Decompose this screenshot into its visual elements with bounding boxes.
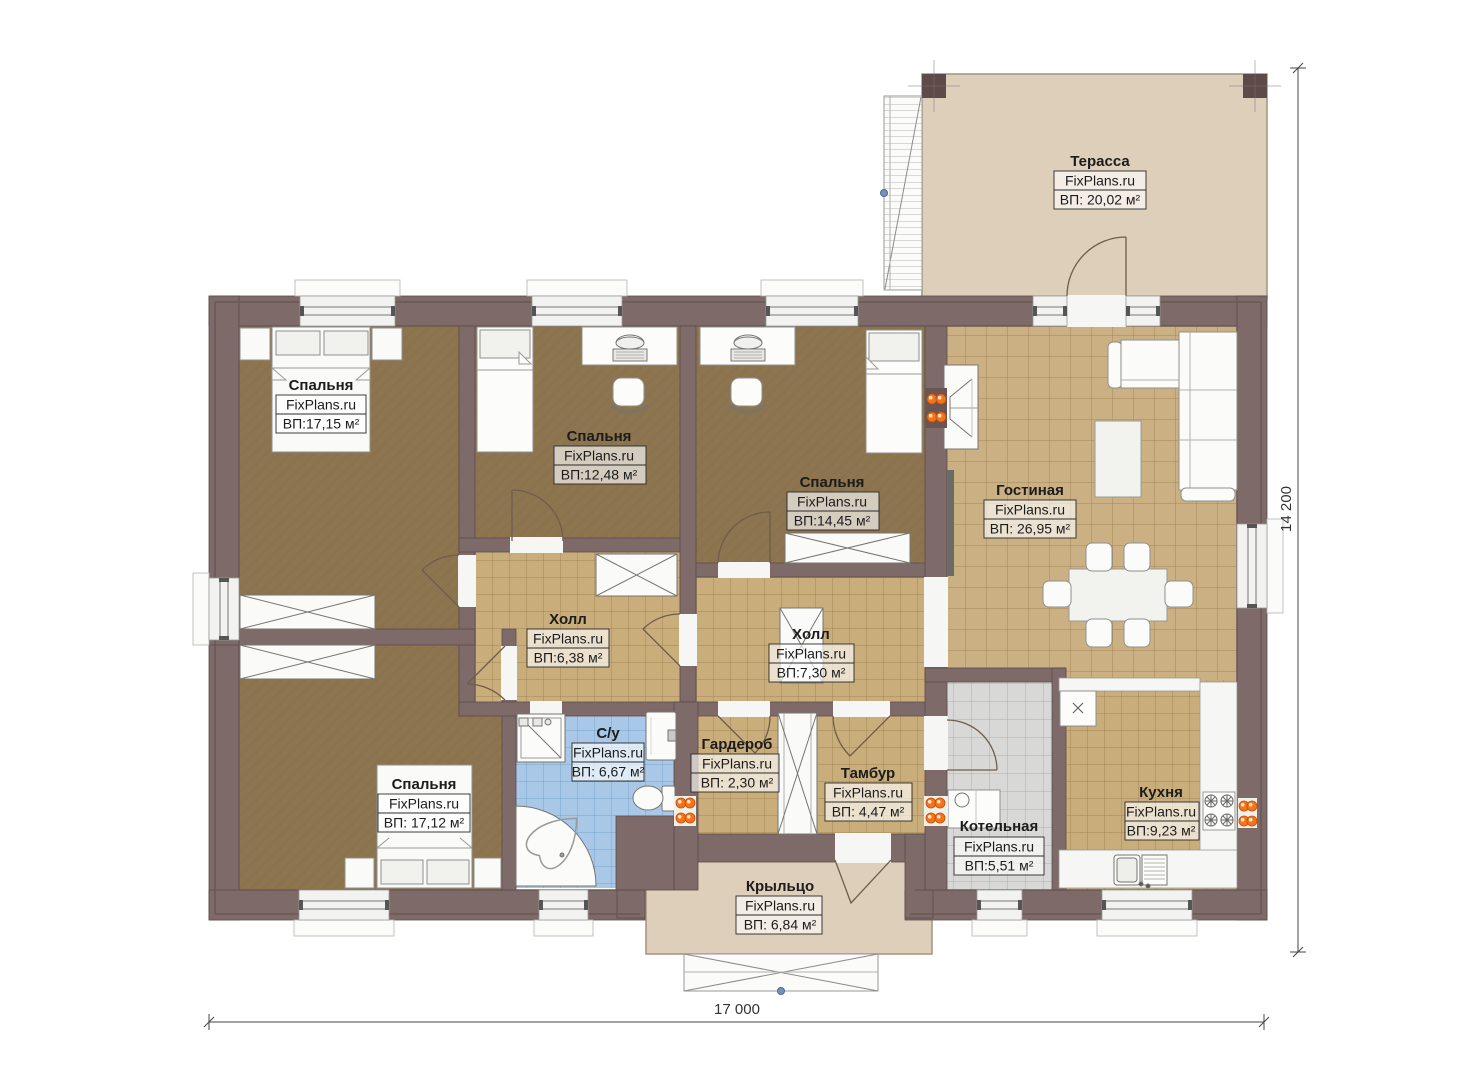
svg-text:Гостиная: Гостиная xyxy=(996,482,1064,499)
svg-text:ВП:6,38 м²: ВП:6,38 м² xyxy=(534,650,603,666)
svg-text:Холл: Холл xyxy=(792,626,830,643)
svg-text:Крыльцо: Крыльцо xyxy=(746,878,814,895)
svg-text:FixPlans.ru: FixPlans.ru xyxy=(573,745,643,761)
svg-text:ВП: 20,02 м²: ВП: 20,02 м² xyxy=(1060,192,1141,208)
svg-text:С/у: С/у xyxy=(596,725,620,742)
svg-text:FixPlans.ru: FixPlans.ru xyxy=(564,448,634,464)
svg-text:ВП:7,30 м²: ВП:7,30 м² xyxy=(777,665,846,681)
svg-text:ВП: 6,67 м²: ВП: 6,67 м² xyxy=(572,764,645,780)
svg-text:ВП:17,15 м²: ВП:17,15 м² xyxy=(283,416,360,432)
svg-text:FixPlans.ru: FixPlans.ru xyxy=(833,785,903,801)
svg-text:Гардероб: Гардероб xyxy=(702,736,773,753)
svg-text:ВП: 17,12 м²: ВП: 17,12 м² xyxy=(384,815,465,831)
svg-text:Котельная: Котельная xyxy=(960,818,1039,835)
svg-text:ВП: 6,84 м²: ВП: 6,84 м² xyxy=(744,917,817,933)
svg-text:ВП:9,23 м²: ВП:9,23 м² xyxy=(1127,823,1196,839)
svg-text:FixPlans.ru: FixPlans.ru xyxy=(1065,173,1135,189)
svg-text:FixPlans.ru: FixPlans.ru xyxy=(533,631,603,647)
svg-text:Тамбур: Тамбур xyxy=(841,765,895,782)
svg-text:FixPlans.ru: FixPlans.ru xyxy=(797,494,867,510)
svg-text:FixPlans.ru: FixPlans.ru xyxy=(702,756,772,772)
svg-text:Спальня: Спальня xyxy=(800,474,865,491)
svg-text:14 200: 14 200 xyxy=(1278,486,1295,532)
svg-text:FixPlans.ru: FixPlans.ru xyxy=(964,839,1034,855)
svg-text:FixPlans.ru: FixPlans.ru xyxy=(286,397,356,413)
svg-text:Спальня: Спальня xyxy=(567,428,632,445)
svg-text:Холл: Холл xyxy=(549,611,587,628)
svg-text:ВП:5,51 м²: ВП:5,51 м² xyxy=(965,858,1034,874)
svg-text:17 000: 17 000 xyxy=(714,1001,760,1018)
svg-text:ВП: 4,47 м²: ВП: 4,47 м² xyxy=(832,804,905,820)
svg-text:Терасса: Терасса xyxy=(1070,153,1130,170)
svg-text:Кухня: Кухня xyxy=(1139,784,1183,801)
svg-text:ВП: 2,30 м²: ВП: 2,30 м² xyxy=(701,775,774,791)
svg-text:FixPlans.ru: FixPlans.ru xyxy=(1126,804,1196,820)
svg-text:ВП: 26,95 м²: ВП: 26,95 м² xyxy=(990,521,1071,537)
svg-text:ВП:14,45 м²: ВП:14,45 м² xyxy=(794,513,871,529)
svg-text:Спальня: Спальня xyxy=(289,377,354,394)
svg-text:FixPlans.ru: FixPlans.ru xyxy=(745,898,815,914)
svg-text:FixPlans.ru: FixPlans.ru xyxy=(776,646,846,662)
svg-text:FixPlans.ru: FixPlans.ru xyxy=(389,796,459,812)
svg-text:Спальня: Спальня xyxy=(392,776,457,793)
svg-text:ВП:12,48 м²: ВП:12,48 м² xyxy=(561,467,638,483)
svg-text:FixPlans.ru: FixPlans.ru xyxy=(995,502,1065,518)
